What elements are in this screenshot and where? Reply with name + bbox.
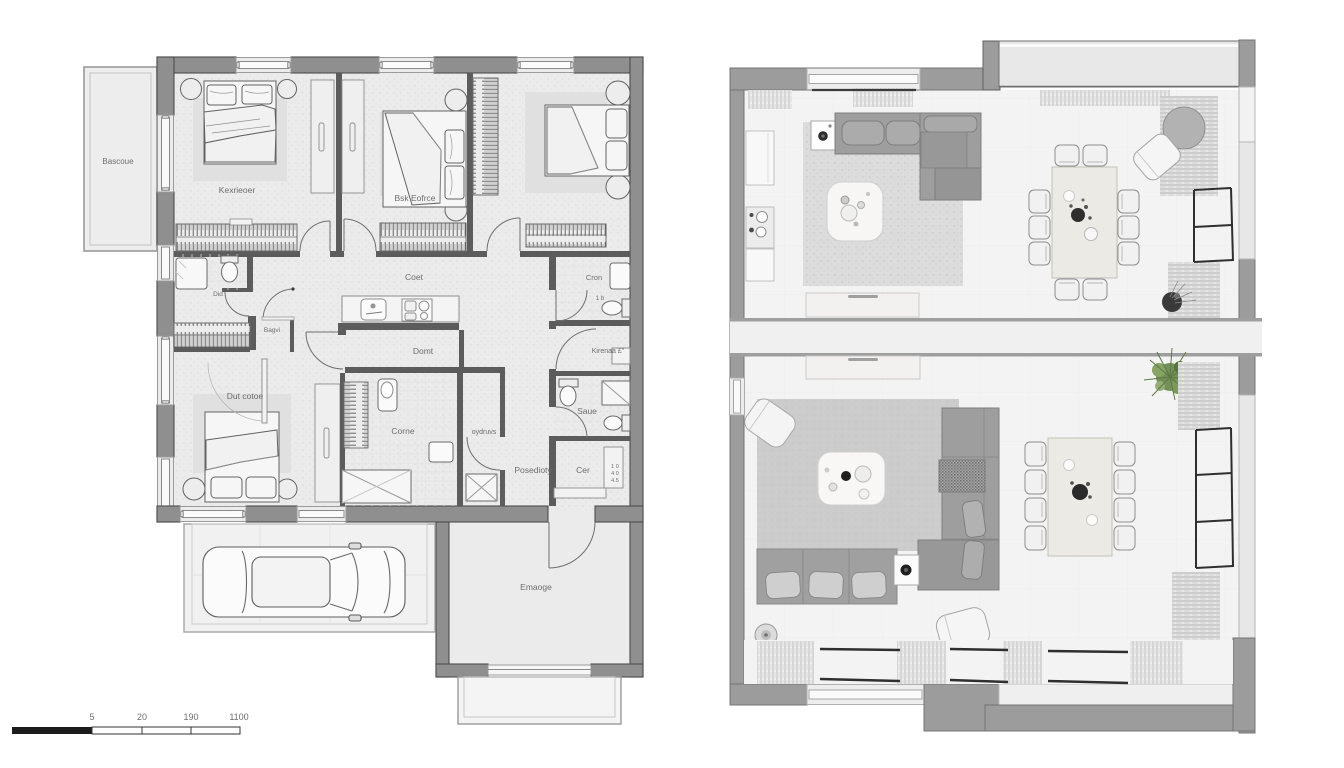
svg-text:Corne: Corne bbox=[391, 426, 414, 436]
svg-text:1100: 1100 bbox=[229, 712, 248, 722]
svg-text:Cron: Cron bbox=[586, 273, 602, 282]
svg-text:20: 20 bbox=[137, 712, 147, 722]
svg-text:Domt: Domt bbox=[413, 346, 434, 356]
svg-text:Posedioty: Posedioty bbox=[514, 465, 552, 475]
svg-text:Bascoue: Bascoue bbox=[102, 157, 134, 166]
svg-text:1 0: 1 0 bbox=[611, 464, 619, 470]
svg-text:Coet: Coet bbox=[405, 272, 424, 282]
svg-text:Emaoge: Emaoge bbox=[520, 582, 552, 592]
svg-text:Kirenaa £": Kirenaa £" bbox=[592, 348, 625, 355]
svg-text:Bsk Eofrce: Bsk Eofrce bbox=[394, 193, 435, 203]
svg-text:Dut cotoe: Dut cotoe bbox=[227, 391, 264, 401]
svg-text:190: 190 bbox=[183, 712, 198, 722]
svg-text:Cer: Cer bbox=[576, 465, 590, 475]
svg-text:4 0: 4 0 bbox=[611, 471, 619, 477]
svg-text:Saue: Saue bbox=[577, 406, 597, 416]
svg-text:4.5: 4.5 bbox=[611, 478, 619, 484]
svg-text:oydruvs: oydruvs bbox=[472, 429, 497, 436]
svg-text:1 b: 1 b bbox=[596, 296, 605, 302]
svg-text:Kexrieoer: Kexrieoer bbox=[219, 185, 256, 195]
svg-text:Did: Did bbox=[213, 291, 223, 298]
svg-text:Bagvi: Bagvi bbox=[264, 327, 280, 334]
svg-text:5: 5 bbox=[89, 712, 94, 722]
